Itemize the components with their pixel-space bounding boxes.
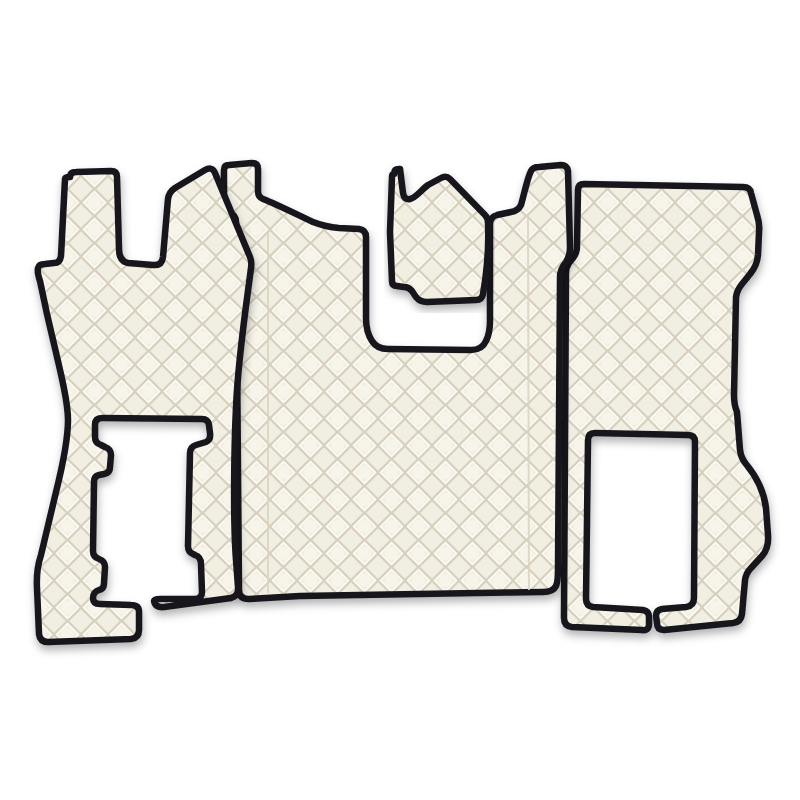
floor-mat-set-image — [0, 0, 800, 800]
product-photo — [0, 0, 800, 800]
tunnel-mat-seam-right — [528, 216, 529, 590]
